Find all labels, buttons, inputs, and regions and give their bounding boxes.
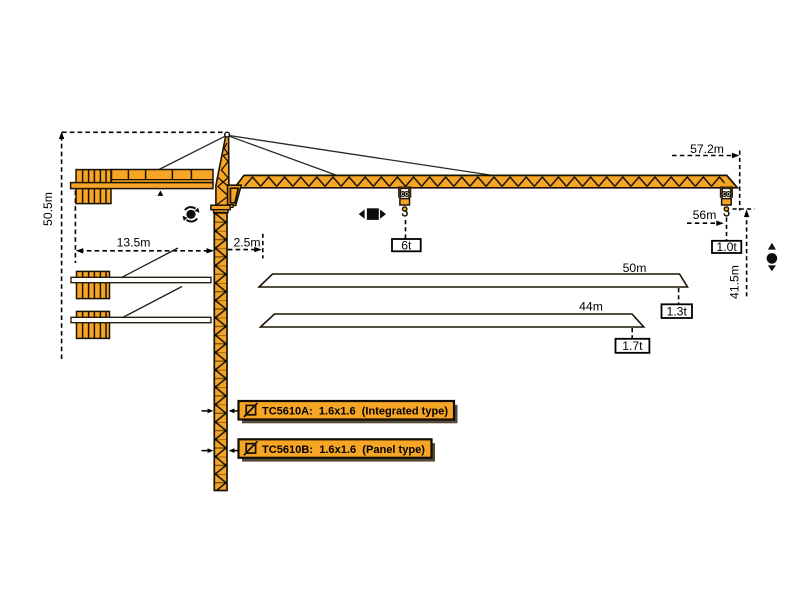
svg-text:TC5610B: 1.6x1.6 (Panel type: TC5610B: 1.6x1.6 (Panel type) <box>262 444 425 456</box>
svg-text:6t: 6t <box>401 238 412 252</box>
svg-text:56m: 56m <box>693 208 717 222</box>
svg-text:44m: 44m <box>579 300 603 314</box>
svg-text:TC5610A: 1.6x1.6 (Integrated: TC5610A: 1.6x1.6 (Integrated type) <box>262 406 448 418</box>
svg-text:1.3t: 1.3t <box>667 304 688 318</box>
svg-text:57.2m: 57.2m <box>690 142 724 156</box>
svg-text:41.5m: 41.5m <box>728 265 742 299</box>
svg-text:1.0t: 1.0t <box>716 240 737 254</box>
svg-text:1.7t: 1.7t <box>622 339 643 353</box>
svg-text:13.5m: 13.5m <box>117 236 151 250</box>
svg-text:50m: 50m <box>623 261 647 275</box>
svg-text:50.5m: 50.5m <box>41 192 55 226</box>
svg-text:2.5m: 2.5m <box>233 235 260 249</box>
